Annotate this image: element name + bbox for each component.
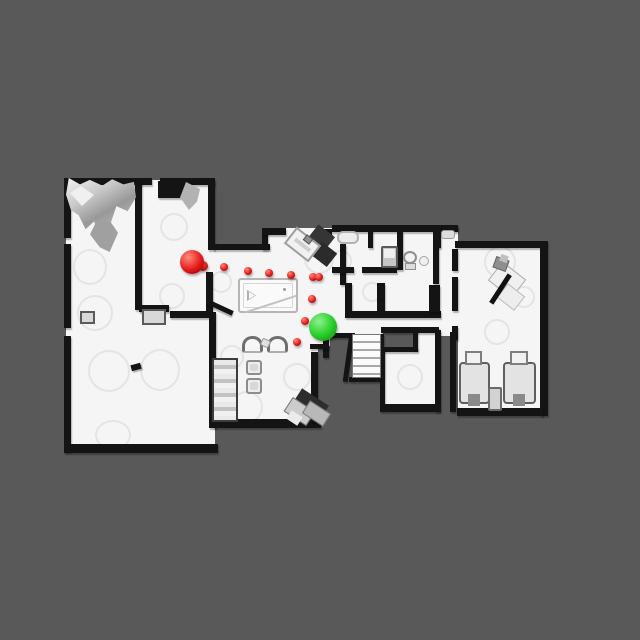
armchair-small-2 [267, 336, 288, 353]
rug-2 [88, 350, 130, 392]
pool-ball [283, 288, 286, 291]
rug-4 [140, 349, 180, 391]
hall-pillow [337, 231, 359, 244]
threshold-left-a [142, 309, 166, 325]
wall-rroom-top [455, 241, 547, 248]
side-table-right [488, 387, 502, 411]
armchair-right-head [510, 351, 528, 365]
rug-15 [397, 364, 423, 390]
wall-hall-right [340, 244, 346, 285]
waypoint-dot-7 [315, 273, 323, 281]
waypoint-dot-2 [220, 263, 228, 271]
armchair-left-gap [468, 394, 480, 406]
wall-band-bottom-l [332, 267, 354, 273]
wall-rroom-right [540, 241, 548, 416]
toilet-tank [405, 263, 416, 270]
wall-left-right-mid [206, 272, 213, 314]
start-marker [180, 250, 204, 274]
wall-internal-vert [135, 181, 142, 310]
wall-left-side-b [64, 244, 71, 328]
wall-left-side-c [64, 336, 71, 452]
wall-sroom-top [381, 327, 439, 333]
wall-stub-1 [345, 283, 352, 313]
wall-sroom-notch-v [413, 330, 418, 350]
shelf-unit [212, 358, 238, 422]
waypoint-dot-8 [308, 295, 316, 303]
stairs-steps [352, 334, 381, 378]
nook-pillow [441, 230, 455, 239]
waypoint-dot-4 [265, 269, 273, 277]
rug-13 [484, 319, 510, 345]
stool-1-top [250, 364, 258, 371]
wall-sroom-bottom [380, 404, 440, 412]
waypoint-dot-9 [301, 317, 309, 325]
waypoint-dot-10 [293, 338, 301, 346]
threshold-left-b [80, 311, 95, 324]
armchair-right-gap [513, 394, 525, 406]
wall-rhall-2 [452, 277, 458, 311]
dresser-top [384, 249, 395, 258]
goal-marker [309, 313, 337, 341]
wall-left-bottom [64, 444, 218, 453]
wall-rhall-1 [452, 249, 458, 271]
wall-rroom-left-low [450, 332, 456, 412]
wall-left-right-upper [208, 180, 215, 250]
armchair-left-head [465, 351, 482, 365]
wall-band-1 [368, 230, 373, 248]
floorplan-viewport[interactable] [0, 0, 640, 640]
wall-internal-horiz-b [170, 311, 213, 318]
wall-green-horiz [310, 344, 329, 349]
wall-top-room-top-l [262, 228, 286, 235]
rug-0 [73, 249, 107, 285]
wall-stub-2 [377, 283, 385, 313]
wall-cell-right [429, 285, 440, 312]
stool-2-top [250, 382, 258, 390]
waypoint-dot-3 [244, 267, 252, 275]
wall-cells-bottom [345, 311, 441, 318]
rug-9 [283, 363, 311, 391]
wall-sroom-right [435, 330, 441, 412]
bathroom-sink [419, 256, 429, 266]
waypoint-dot-5 [287, 271, 295, 279]
rug-11 [210, 271, 232, 293]
rug-6 [160, 213, 188, 241]
